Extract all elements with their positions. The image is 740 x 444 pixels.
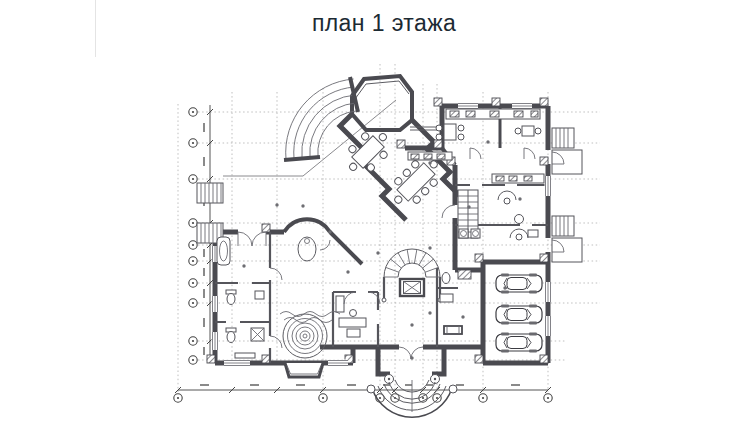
bottom-axis-markers	[174, 394, 552, 402]
left-axis-markers	[189, 108, 197, 364]
car-2	[496, 305, 542, 325]
round-pool-jacuzzi	[280, 312, 340, 359]
water-waves	[280, 312, 340, 317]
study-room-furniture	[336, 296, 366, 337]
floor-plan-page: план 1 этажа	[0, 0, 740, 444]
grand-horseshoe-staircase	[382, 249, 442, 302]
lounge-chairs	[498, 191, 528, 240]
car-3	[496, 333, 542, 353]
turret-wall	[284, 219, 330, 232]
external-stairs-right	[552, 128, 582, 262]
bow-window-bay	[285, 363, 323, 377]
door-swings	[238, 148, 535, 348]
dimension-value-marks	[200, 384, 520, 386]
car-1	[496, 274, 542, 294]
octagonal-bay-window	[352, 76, 412, 130]
spa-bathroom-fixtures	[217, 237, 264, 358]
wall-piers	[207, 98, 548, 363]
floor-plan-drawing	[0, 0, 740, 444]
garage	[496, 274, 542, 353]
reference-dots	[242, 140, 521, 359]
round-turret-room	[298, 237, 330, 261]
bottom-dimension-line	[175, 384, 551, 393]
elevator-shaft	[400, 279, 424, 296]
